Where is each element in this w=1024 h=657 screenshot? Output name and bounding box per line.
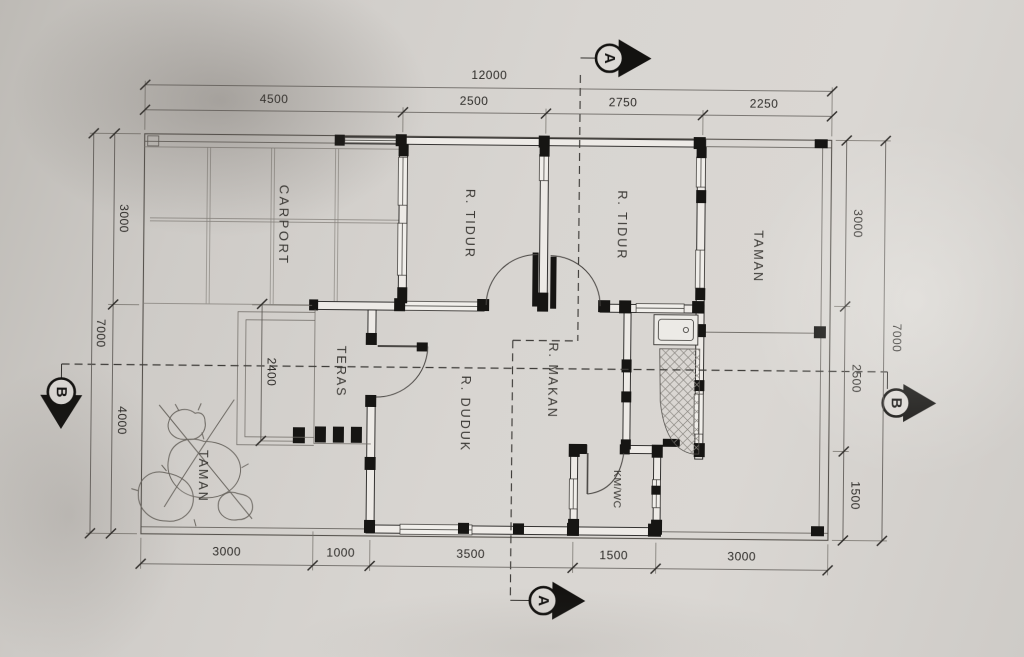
dim-left-2: 4000 bbox=[116, 406, 128, 435]
terrace-step bbox=[351, 427, 362, 443]
plot-boundary bbox=[141, 134, 832, 541]
dim-bottom-5: 3000 bbox=[727, 550, 756, 562]
dim-bottom-4: 1500 bbox=[599, 549, 628, 561]
dim-bottom-2: 1000 bbox=[326, 547, 355, 559]
door-swings bbox=[375, 253, 625, 494]
garden-plant bbox=[131, 399, 254, 527]
kitchen-fixtures bbox=[653, 315, 700, 454]
room-label-bedroom-left: R. TIDUR bbox=[463, 189, 476, 259]
section-letter-a-bottom: A bbox=[536, 595, 551, 606]
terrace-step bbox=[293, 427, 305, 443]
dim-top-4: 2250 bbox=[750, 98, 779, 110]
dim-left-total: 7000 bbox=[95, 319, 107, 348]
dim-right-3: 1500 bbox=[849, 481, 861, 510]
room-label-terrace: TERAS bbox=[334, 346, 347, 398]
door-leaf bbox=[550, 257, 556, 309]
dim-right-1: 3000 bbox=[852, 209, 864, 238]
dim-top-1: 4500 bbox=[260, 93, 289, 105]
section-a-line bbox=[578, 75, 581, 341]
section-letter-a-top: A bbox=[602, 53, 617, 64]
dim-right-total: 7000 bbox=[891, 324, 903, 353]
dim-left-1: 3000 bbox=[118, 204, 130, 233]
section-letter-b-right: B bbox=[889, 398, 904, 409]
terrace-step bbox=[315, 426, 326, 442]
dim-bottom-3: 3500 bbox=[456, 548, 485, 560]
floor-plan-photo: 12000 4500 2500 2750 2250 3000 1000 3500… bbox=[0, 0, 1024, 657]
dim-terrace-depth: 2400 bbox=[265, 358, 277, 387]
dim-top-2: 2500 bbox=[460, 95, 489, 107]
drawing-sheet: 12000 4500 2500 2750 2250 3000 1000 3500… bbox=[0, 0, 1024, 657]
room-label-carport: CARPORT bbox=[277, 185, 291, 266]
dim-bottom-1: 3000 bbox=[212, 545, 241, 557]
section-letter-b-left: B bbox=[54, 386, 69, 397]
terrace-path bbox=[237, 309, 372, 446]
door-leaf bbox=[417, 342, 428, 351]
section-b-line bbox=[62, 364, 888, 372]
room-label-living-room: R. DUDUK bbox=[458, 376, 471, 453]
room-label-dining-room: R. MAKAN bbox=[546, 342, 559, 419]
kitchen-counter-hatch bbox=[659, 349, 700, 454]
room-label-bedroom-right: R. TIDUR bbox=[615, 190, 628, 260]
room-label-bathroom: KM/WC bbox=[611, 470, 622, 509]
door-leaf bbox=[532, 253, 539, 307]
room-label-garden-left: TAMAN bbox=[196, 450, 209, 503]
windows bbox=[341, 138, 706, 537]
room-label-garden-right: TAMAN bbox=[751, 230, 764, 283]
terrace-step bbox=[333, 427, 344, 443]
dim-top-3: 2750 bbox=[609, 96, 638, 108]
dim-top-total: 12000 bbox=[471, 69, 507, 81]
dim-right-2: 2500 bbox=[850, 364, 862, 393]
carport-grid bbox=[143, 147, 400, 306]
floor-plan-canvas bbox=[0, 0, 1024, 657]
section-lines bbox=[38, 34, 940, 624]
